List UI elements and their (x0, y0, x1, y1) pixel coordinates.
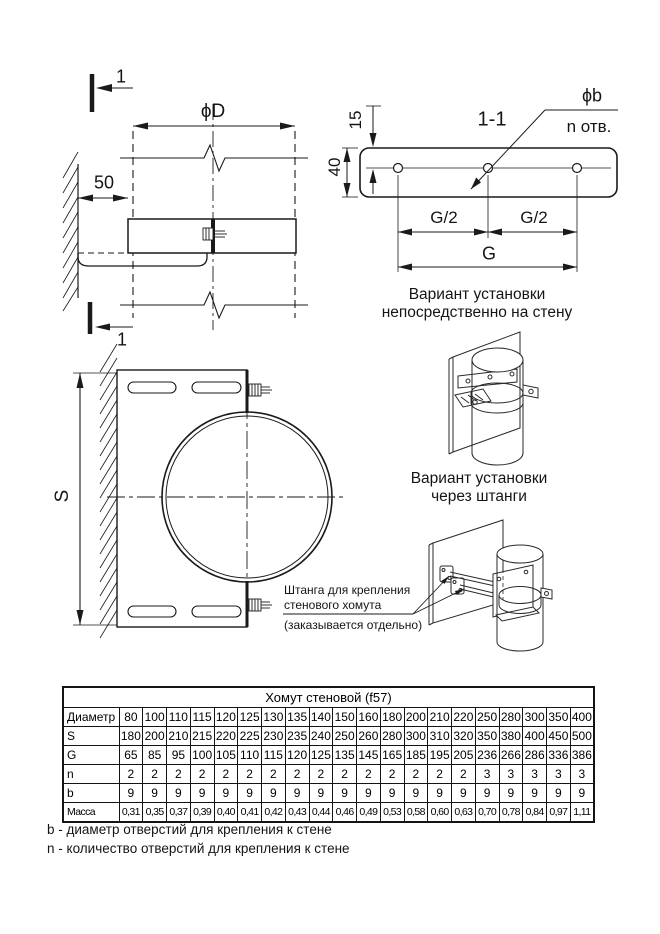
technical-drawing-page: 1 ϕD 50 1 1-1 ϕb n отв. 15 40 G/2 G/2 G … (0, 0, 660, 934)
table-cell: 9 (357, 784, 381, 803)
table-row: G658595100105110115120125135145165185195… (63, 746, 594, 765)
table-cell: 85 (143, 746, 167, 765)
table-cell: 135 (333, 746, 357, 765)
spec-table-body: Хомут стеновой (f57)Диаметр8010011011512… (63, 687, 594, 822)
table-cell: 2 (357, 765, 381, 784)
table-cell: 165 (380, 746, 404, 765)
diameter-dimension (133, 123, 295, 130)
table-cell: 0,53 (380, 803, 404, 823)
table-cell: 2 (190, 765, 214, 784)
row-header: b (63, 784, 119, 803)
table-cell: 0,46 (333, 803, 357, 823)
table-cell: 386 (570, 746, 594, 765)
table-cell: 9 (309, 784, 333, 803)
table-cell: 2 (285, 765, 309, 784)
table-cell: 400 (523, 727, 547, 746)
table-cell: 300 (523, 708, 547, 727)
table-cell: 9 (475, 784, 499, 803)
table-cell: 1,11 (570, 803, 594, 823)
table-cell: 9 (380, 784, 404, 803)
table-cell: 300 (404, 727, 428, 746)
table-cell: 3 (547, 765, 571, 784)
caption-direct-line2: непосредственно на стену (378, 304, 576, 322)
table-cell: 320 (452, 727, 476, 746)
table-row: S180200210215220225230235240250260280300… (63, 727, 594, 746)
table-cell: 310 (428, 727, 452, 746)
table-cell: 9 (499, 784, 523, 803)
table-cell: 2 (238, 765, 262, 784)
table-row: n22222222222222233333 (63, 765, 594, 784)
table-cell: 2 (404, 765, 428, 784)
table-cell: 0,31 (119, 803, 143, 823)
table-cell: 9 (452, 784, 476, 803)
table-cell: 0,41 (238, 803, 262, 823)
side-view-drawing (40, 55, 332, 357)
table-cell: 110 (238, 746, 262, 765)
table-cell: 2 (262, 765, 286, 784)
table-cell: 210 (428, 708, 452, 727)
dim-label-15: 15 (346, 111, 366, 130)
dim-label-s: S (52, 490, 74, 503)
table-cell: 9 (285, 784, 309, 803)
table-cell: 0,70 (475, 803, 499, 823)
table-cell: 266 (499, 746, 523, 765)
table-cell: 0,84 (523, 803, 547, 823)
section-cut-mark-top (92, 74, 133, 112)
table-cell: 150 (333, 708, 357, 727)
table-cell: 9 (167, 784, 191, 803)
table-cell: 180 (119, 727, 143, 746)
dim-label-g2-right: G/2 (520, 208, 547, 228)
table-cell: 3 (523, 765, 547, 784)
table-cell: 180 (380, 708, 404, 727)
dim-label-40: 40 (325, 158, 345, 177)
table-cell: 2 (167, 765, 191, 784)
table-cell: 0,39 (190, 803, 214, 823)
table-cell: 2 (333, 765, 357, 784)
table-cell: 250 (333, 727, 357, 746)
table-cell: 100 (190, 746, 214, 765)
table-cell: 3 (475, 765, 499, 784)
row-header: Масса (63, 803, 119, 823)
footnote-b: b - диаметр отверстий для крепления к ст… (47, 822, 332, 837)
table-cell: 3 (499, 765, 523, 784)
table-cell: 240 (309, 727, 333, 746)
dim-label-g: G (482, 244, 496, 265)
table-cell: 9 (428, 784, 452, 803)
table-cell: 200 (143, 727, 167, 746)
table-cell: 9 (404, 784, 428, 803)
spec-table: Хомут стеновой (f57)Диаметр8010011011512… (62, 686, 595, 823)
table-cell: 195 (428, 746, 452, 765)
table-cell: 210 (167, 727, 191, 746)
table-cell: 286 (523, 746, 547, 765)
bolt-bottom (249, 599, 272, 611)
dim-label-offset-50: 50 (94, 173, 114, 194)
table-cell: 160 (357, 708, 381, 727)
table-cell: 2 (428, 765, 452, 784)
table-cell: 0,63 (452, 803, 476, 823)
table-cell: 450 (547, 727, 571, 746)
caption-direct-line1: Вариант установки (378, 286, 576, 304)
caption-rods-line2: через штанги (390, 488, 568, 506)
table-row: Диаметр801001101151201251301351401501601… (63, 708, 594, 727)
table-cell: 0,43 (285, 803, 309, 823)
table-cell: 9 (570, 784, 594, 803)
table-row: b99999999999999999999 (63, 784, 594, 803)
wall-hatch (63, 152, 78, 311)
table-cell: 0,37 (167, 803, 191, 823)
table-cell: 225 (238, 727, 262, 746)
table-row: Масса0,310,350,370,390,400,410,420,430,4… (63, 803, 594, 823)
table-cell: 215 (190, 727, 214, 746)
caption-rods-line1: Вариант установки (390, 470, 568, 488)
table-cell: 100 (143, 708, 167, 727)
table-cell: 380 (499, 727, 523, 746)
table-cell: 250 (475, 708, 499, 727)
table-cell: 0,97 (547, 803, 571, 823)
table-cell: 0,78 (499, 803, 523, 823)
rod-annotation-note: (заказывается отдельно) (284, 618, 422, 633)
table-cell: 115 (262, 746, 286, 765)
table-cell: 336 (547, 746, 571, 765)
mounting-plate (360, 148, 617, 197)
table-cell: 0,60 (428, 803, 452, 823)
table-cell: 0,49 (357, 803, 381, 823)
table-cell: 80 (119, 708, 143, 727)
dim-label-g2-left: G/2 (430, 208, 457, 228)
table-cell: 350 (547, 708, 571, 727)
table-cell: 230 (262, 727, 286, 746)
table-cell: 9 (119, 784, 143, 803)
dim-label-diameter: ϕD (201, 101, 225, 123)
caption-rods-mount: Вариант установки через штанги (390, 470, 568, 505)
table-cell: 2 (143, 765, 167, 784)
section-mark-label-top: 1 (116, 67, 126, 88)
table-cell: 0,58 (404, 803, 428, 823)
table-cell: 205 (452, 746, 476, 765)
table-cell: 125 (238, 708, 262, 727)
table-cell: 95 (167, 746, 191, 765)
installation-direct-illustration (435, 325, 567, 467)
row-header: n (63, 765, 119, 784)
table-cell: 235 (285, 727, 309, 746)
row-header: S (63, 727, 119, 746)
dim-label-hole-count: n отв. (567, 117, 612, 137)
table-cell: 3 (570, 765, 594, 784)
table-cell: 280 (499, 708, 523, 727)
row-header: Диаметр (63, 708, 119, 727)
table-cell: 65 (119, 746, 143, 765)
table-cell: 9 (190, 784, 214, 803)
table-title: Хомут стеновой (f57) (63, 687, 594, 708)
table-cell: 0,35 (143, 803, 167, 823)
row-header: G (63, 746, 119, 765)
table-cell: 140 (309, 708, 333, 727)
table-cell: 120 (214, 708, 238, 727)
bolt-top (249, 384, 272, 396)
table-cell: 135 (285, 708, 309, 727)
table-cell: 110 (167, 708, 191, 727)
table-cell: 105 (214, 746, 238, 765)
table-cell: 125 (309, 746, 333, 765)
table-cell: 0,44 (309, 803, 333, 823)
table-cell: 2 (452, 765, 476, 784)
table-cell: 9 (523, 784, 547, 803)
table-cell: 9 (238, 784, 262, 803)
wall-hatch (100, 344, 117, 638)
table-cell: 9 (143, 784, 167, 803)
rod-annotation-line1: Штанга для крепления (284, 583, 410, 598)
clamp-band (128, 219, 296, 253)
section-mark-label-bottom: 1 (117, 330, 127, 351)
table-cell: 220 (452, 708, 476, 727)
footnote-n: n - количество отверстий для крепления к… (47, 841, 350, 856)
table-cell: 2 (309, 765, 333, 784)
table-cell: 260 (357, 727, 381, 746)
table-cell: 9 (262, 784, 286, 803)
table-cell: 2 (119, 765, 143, 784)
caption-direct-mount: Вариант установки непосредственно на сте… (378, 286, 576, 321)
table-cell: 115 (190, 708, 214, 727)
table-cell: 185 (404, 746, 428, 765)
table-cell: 2 (214, 765, 238, 784)
table-cell: 400 (570, 708, 594, 727)
table-cell: 0,42 (262, 803, 286, 823)
table-cell: 145 (357, 746, 381, 765)
table-cell: 236 (475, 746, 499, 765)
pipe-outline (120, 104, 308, 330)
table-cell: 120 (285, 746, 309, 765)
table-cell: 9 (547, 784, 571, 803)
offset-dimension (78, 195, 128, 202)
section-view-title: 1-1 (478, 109, 507, 132)
table-cell: 350 (475, 727, 499, 746)
table-cell: 9 (214, 784, 238, 803)
table-cell: 220 (214, 727, 238, 746)
table-cell: 0,40 (214, 803, 238, 823)
table-cell: 280 (380, 727, 404, 746)
table-cell: 200 (404, 708, 428, 727)
table-cell: 2 (380, 765, 404, 784)
dim-label-hole-diameter: ϕb (582, 86, 602, 107)
table-cell: 9 (333, 784, 357, 803)
rod-annotation-line2: стенового хомута (284, 598, 381, 613)
table-cell: 500 (570, 727, 594, 746)
bracket-plate (78, 253, 207, 266)
table-cell: 130 (262, 708, 286, 727)
